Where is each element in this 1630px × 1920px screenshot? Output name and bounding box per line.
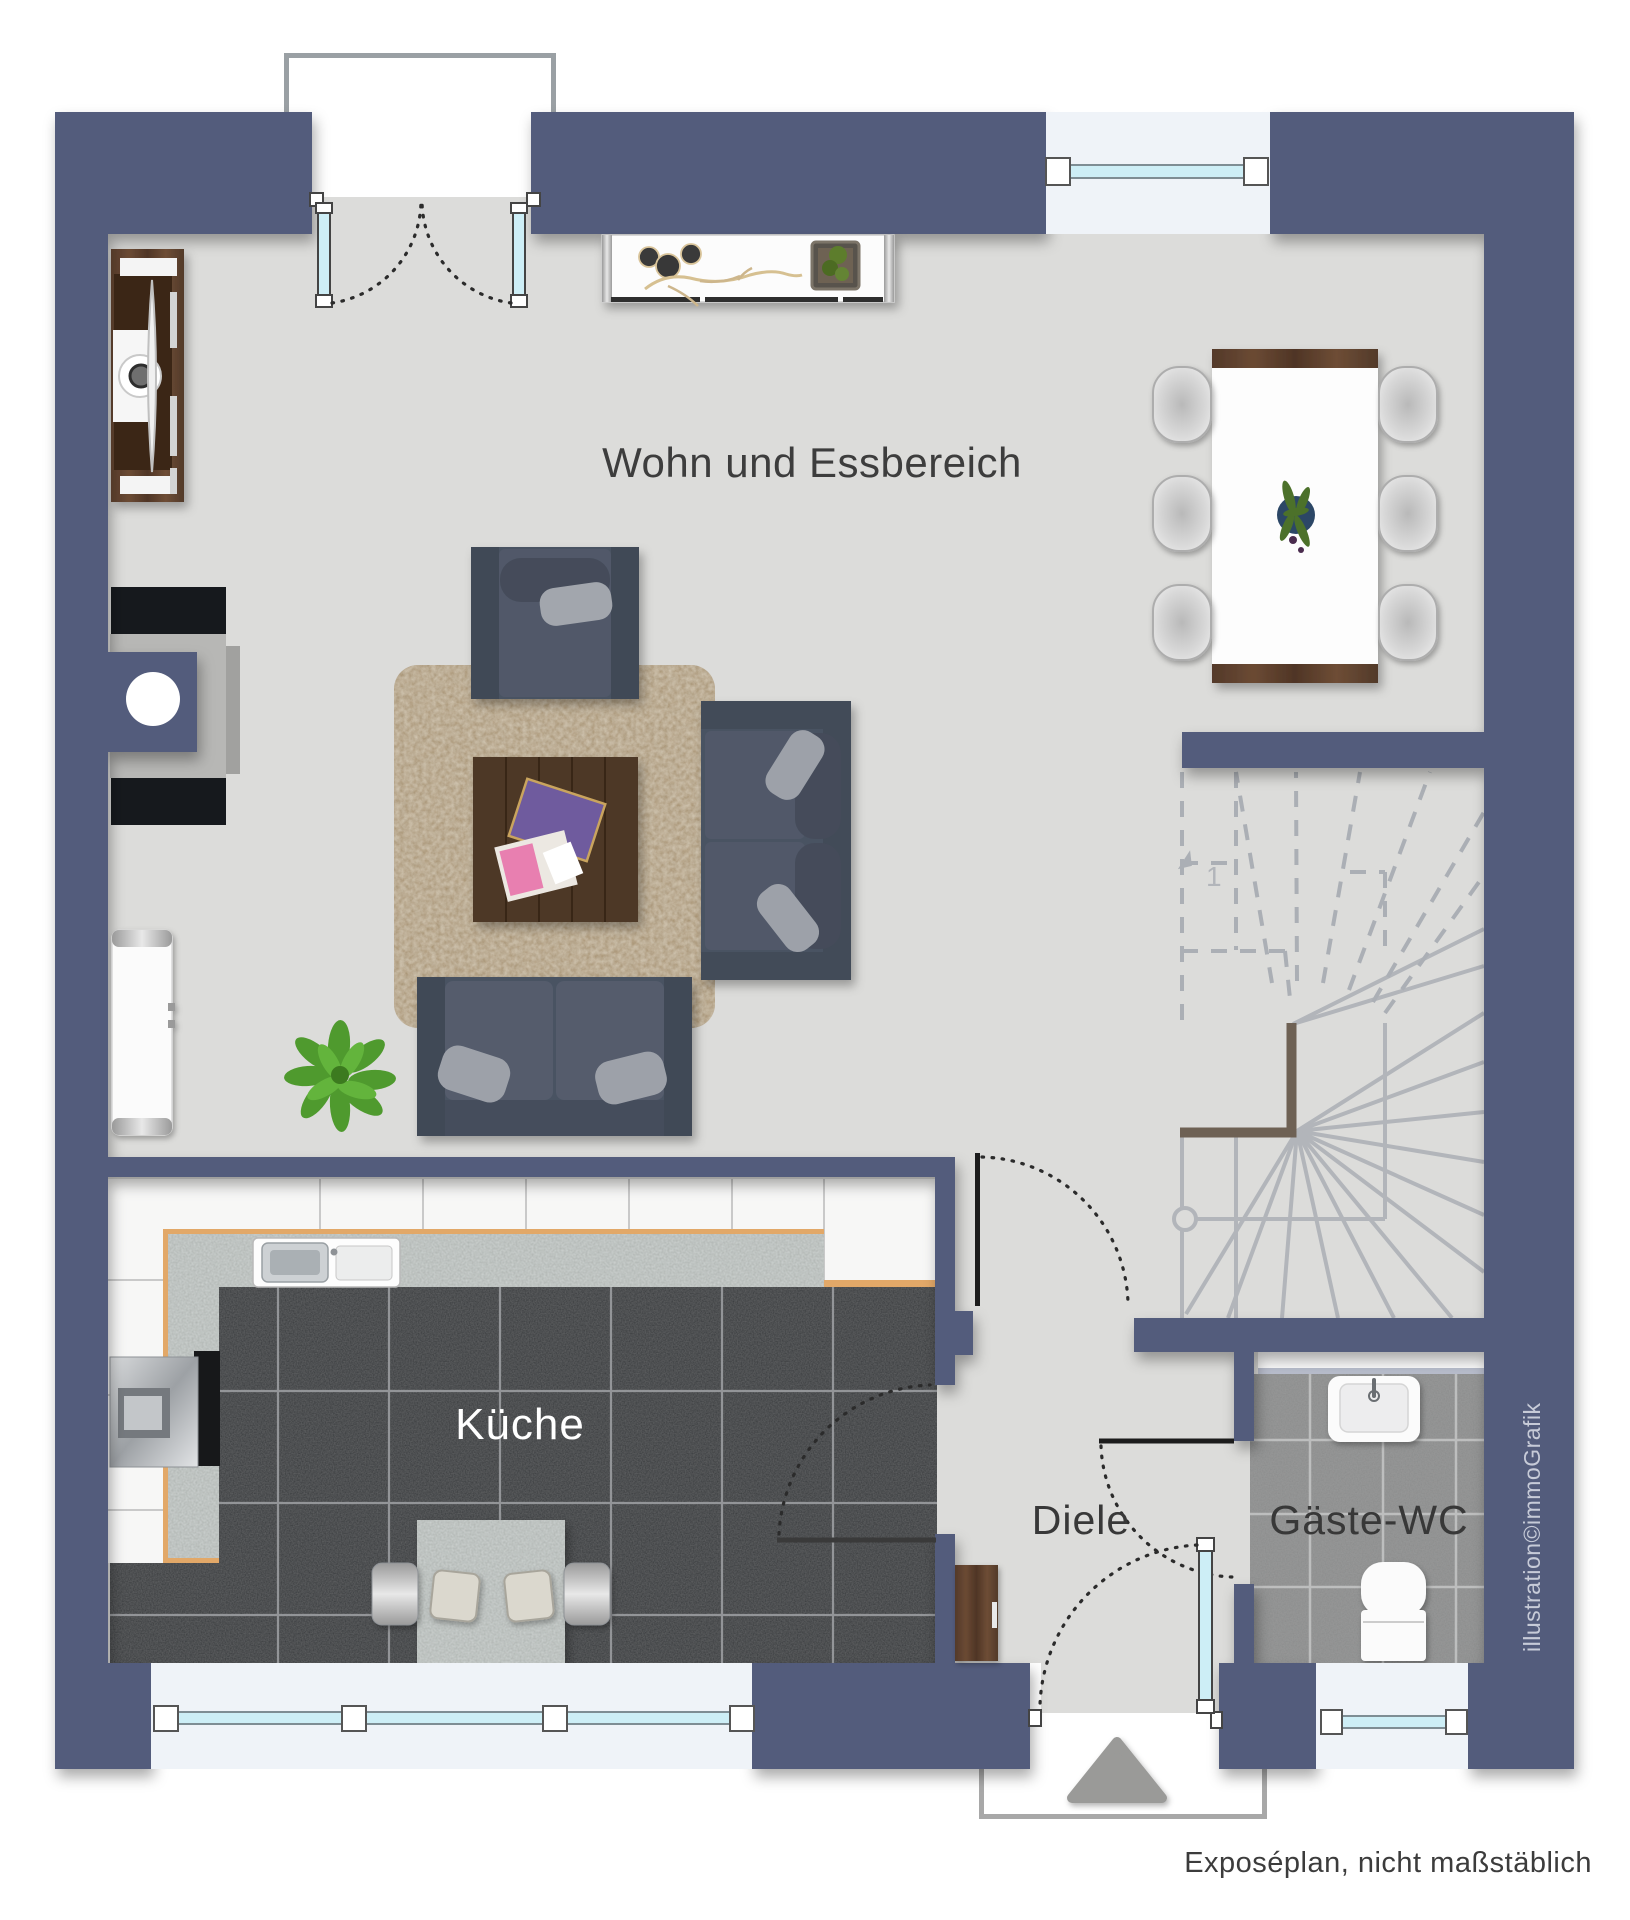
svg-text:Wohn und Essbereich: Wohn und Essbereich [602,439,1022,486]
svg-text:Gäste-WC: Gäste-WC [1269,1497,1468,1543]
svg-text:Exposéplan, nicht maßstäblich: Exposéplan, nicht maßstäblich [1184,1847,1592,1879]
svg-text:1: 1 [1206,861,1222,892]
svg-text:illustration©immoGrafik: illustration©immoGrafik [1519,1402,1545,1652]
svg-text:Diele: Diele [1032,1497,1130,1543]
svg-text:Küche: Küche [455,1400,585,1449]
